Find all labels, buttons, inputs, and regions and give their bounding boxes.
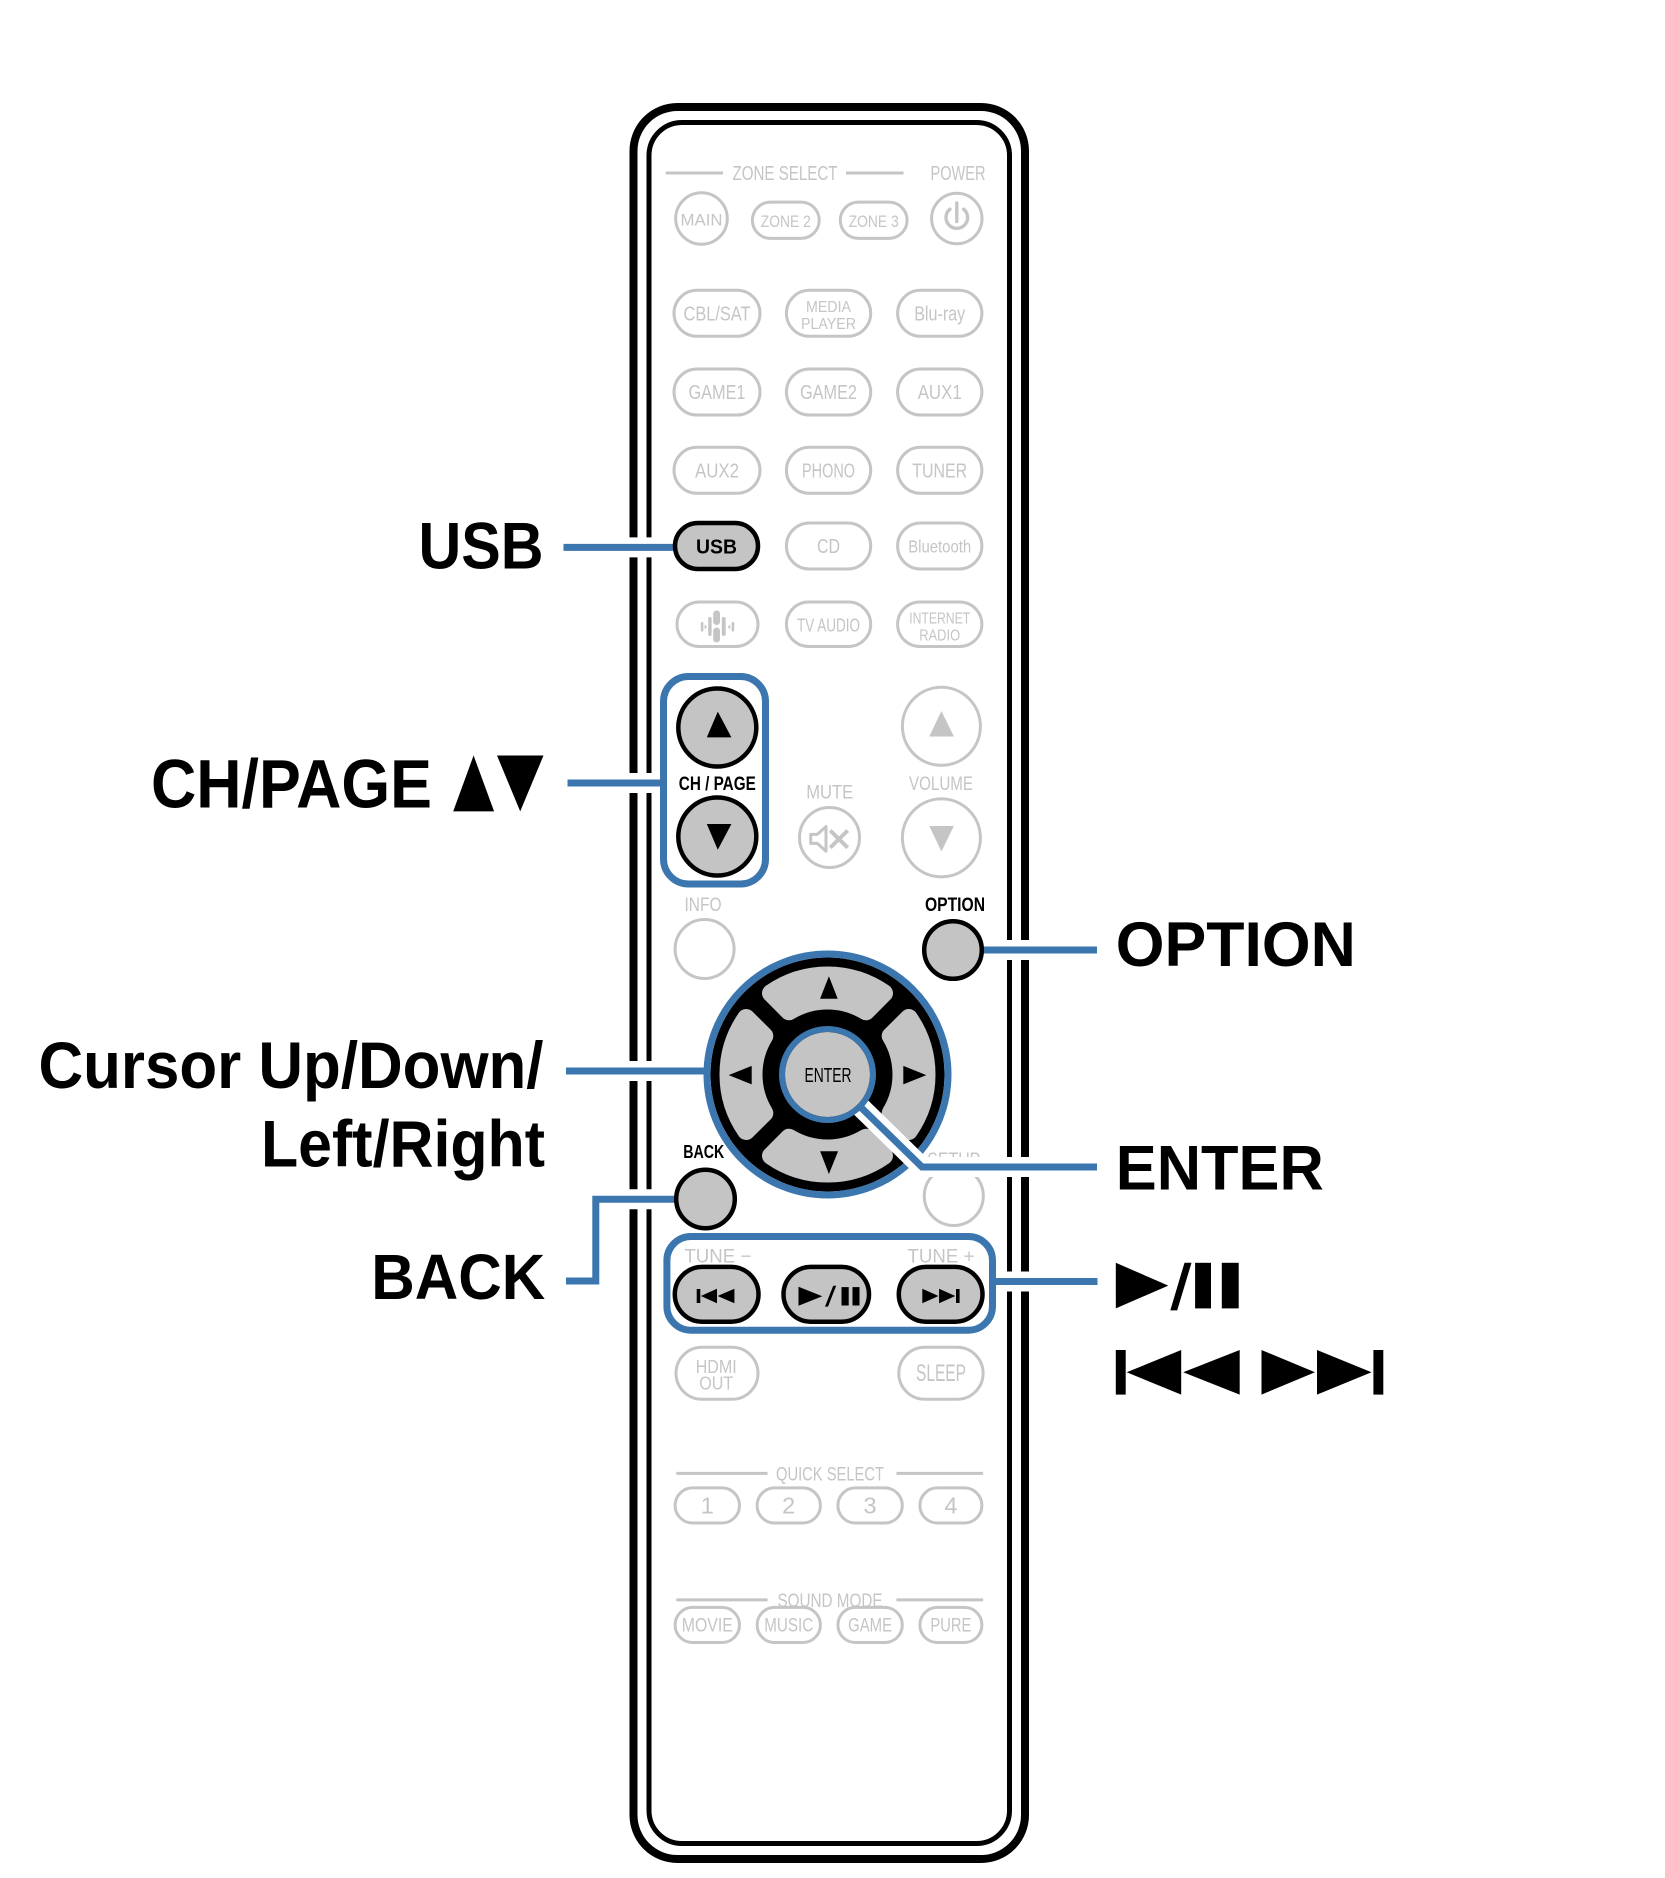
svg-text:TV AUDIO: TV AUDIO	[797, 616, 860, 636]
svg-text:TUNER: TUNER	[912, 460, 967, 482]
svg-text:VOLUME: VOLUME	[909, 774, 973, 795]
svg-text:ZONE SELECT: ZONE SELECT	[733, 163, 838, 185]
svg-text:ENTER: ENTER	[805, 1065, 852, 1087]
svg-text:SLEEP: SLEEP	[916, 1360, 966, 1387]
svg-text:PHONO: PHONO	[802, 460, 855, 482]
svg-text:MEDIA: MEDIA	[806, 299, 852, 316]
svg-text:PURE: PURE	[930, 1616, 971, 1637]
svg-text:MOVIE: MOVIE	[682, 1616, 733, 1637]
svg-text:ZONE 2: ZONE 2	[761, 212, 811, 231]
svg-text:BACK: BACK	[683, 1142, 724, 1162]
svg-text:INFO: INFO	[685, 895, 722, 916]
svg-text:Bluetooth: Bluetooth	[908, 537, 971, 557]
svg-text:INTERNET: INTERNET	[909, 611, 970, 628]
svg-text:USB: USB	[696, 537, 737, 559]
svg-text:OUT: OUT	[699, 1373, 733, 1393]
svg-text:AUX1: AUX1	[918, 382, 962, 404]
svg-text:QUICK SELECT: QUICK SELECT	[776, 1463, 884, 1485]
svg-text:CD: CD	[817, 536, 840, 558]
svg-text:2: 2	[782, 1493, 795, 1519]
svg-text:CH/PAGE: CH/PAGE	[151, 746, 432, 823]
svg-text:GAME2: GAME2	[800, 382, 857, 404]
svg-text:ENTER: ENTER	[1116, 1134, 1324, 1204]
svg-text:MUSIC: MUSIC	[764, 1616, 813, 1637]
svg-text:AUX2: AUX2	[695, 460, 739, 482]
svg-text:GAME: GAME	[848, 1616, 892, 1637]
svg-text:ZONE 3: ZONE 3	[849, 212, 899, 231]
svg-text:3: 3	[864, 1493, 877, 1519]
svg-text:MUTE: MUTE	[806, 783, 853, 804]
svg-text:Cursor Up/Down/: Cursor Up/Down/	[39, 1028, 544, 1102]
svg-text:PLAYER: PLAYER	[801, 316, 856, 333]
svg-text:Left/Right: Left/Right	[261, 1106, 545, 1180]
svg-text:TUNE −: TUNE −	[684, 1247, 751, 1268]
svg-text:BACK: BACK	[371, 1241, 545, 1313]
svg-text:TUNE +: TUNE +	[908, 1247, 975, 1268]
svg-text:MAIN: MAIN	[681, 211, 723, 230]
svg-text:GAME1: GAME1	[689, 382, 746, 404]
svg-text:CH / PAGE: CH / PAGE	[679, 774, 756, 795]
svg-text:4: 4	[944, 1493, 957, 1519]
svg-text:1: 1	[701, 1493, 714, 1519]
svg-text:CBL/SAT: CBL/SAT	[684, 303, 751, 325]
svg-text:USB: USB	[419, 509, 544, 583]
svg-text:OPTION: OPTION	[925, 894, 985, 916]
svg-text:RADIO: RADIO	[919, 628, 960, 645]
svg-text:POWER: POWER	[931, 163, 986, 185]
svg-text:Blu-ray: Blu-ray	[914, 303, 965, 325]
svg-text:OPTION: OPTION	[1116, 910, 1356, 980]
